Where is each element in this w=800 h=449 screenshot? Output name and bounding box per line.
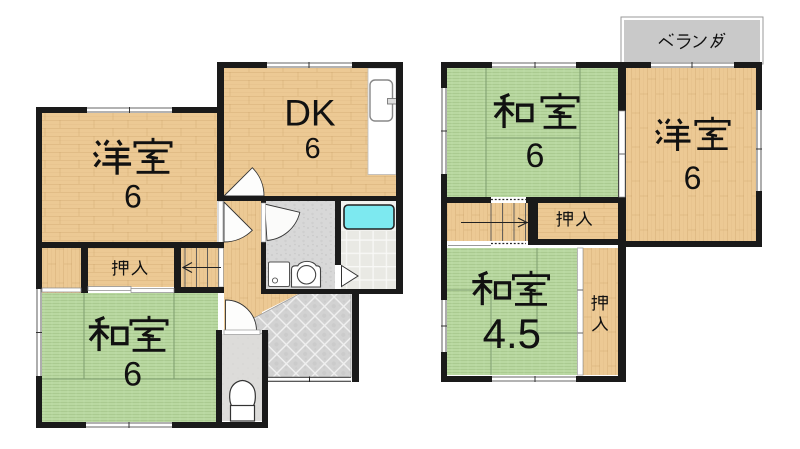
svg-text:6: 6 <box>684 160 702 196</box>
svg-text:6: 6 <box>526 137 545 175</box>
svg-text:6: 6 <box>124 179 142 215</box>
svg-text:6: 6 <box>305 133 321 165</box>
svg-text:DK: DK <box>284 93 336 134</box>
svg-text:6: 6 <box>123 356 142 394</box>
svg-text:4.5: 4.5 <box>483 310 541 357</box>
